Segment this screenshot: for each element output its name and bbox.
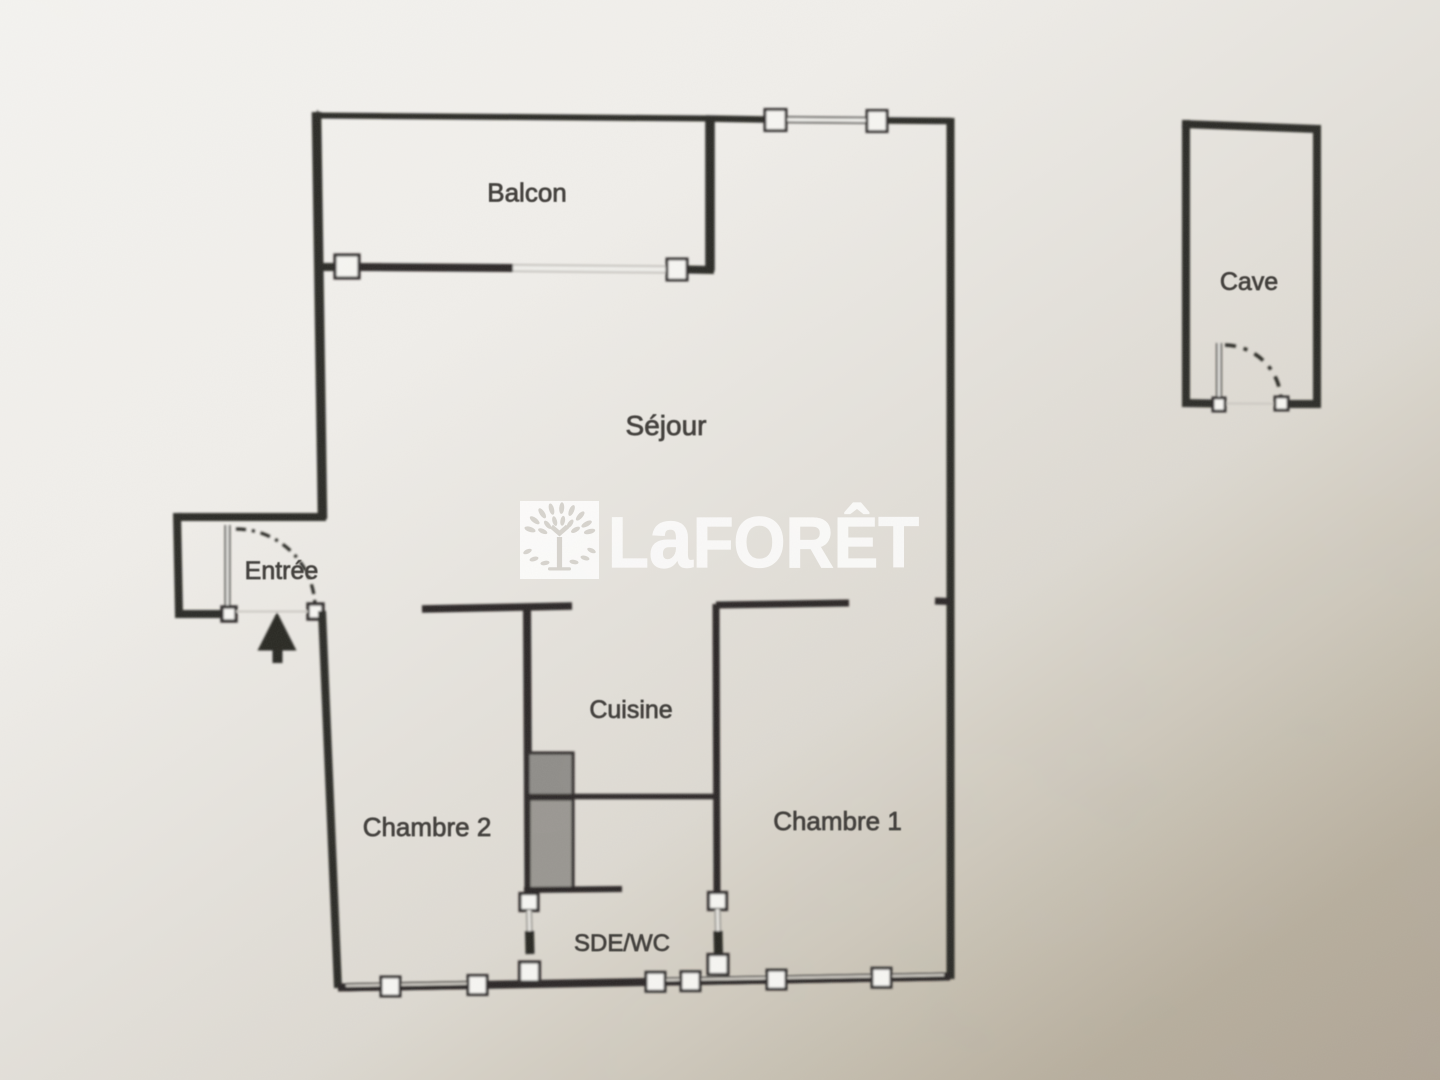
svg-text:Séjour: Séjour: [626, 410, 707, 441]
svg-text:Entrée: Entrée: [245, 557, 319, 585]
svg-text:Balcon: Balcon: [487, 178, 567, 208]
svg-text:Cave: Cave: [1220, 268, 1278, 296]
svg-text:SDE/WC: SDE/WC: [574, 930, 670, 957]
svg-text:LaFORÊT: LaFORÊT: [608, 491, 919, 585]
svg-text:Chambre 2: Chambre 2: [363, 812, 492, 842]
svg-text:Chambre 1: Chambre 1: [773, 806, 902, 836]
svg-text:Cuisine: Cuisine: [589, 696, 672, 724]
